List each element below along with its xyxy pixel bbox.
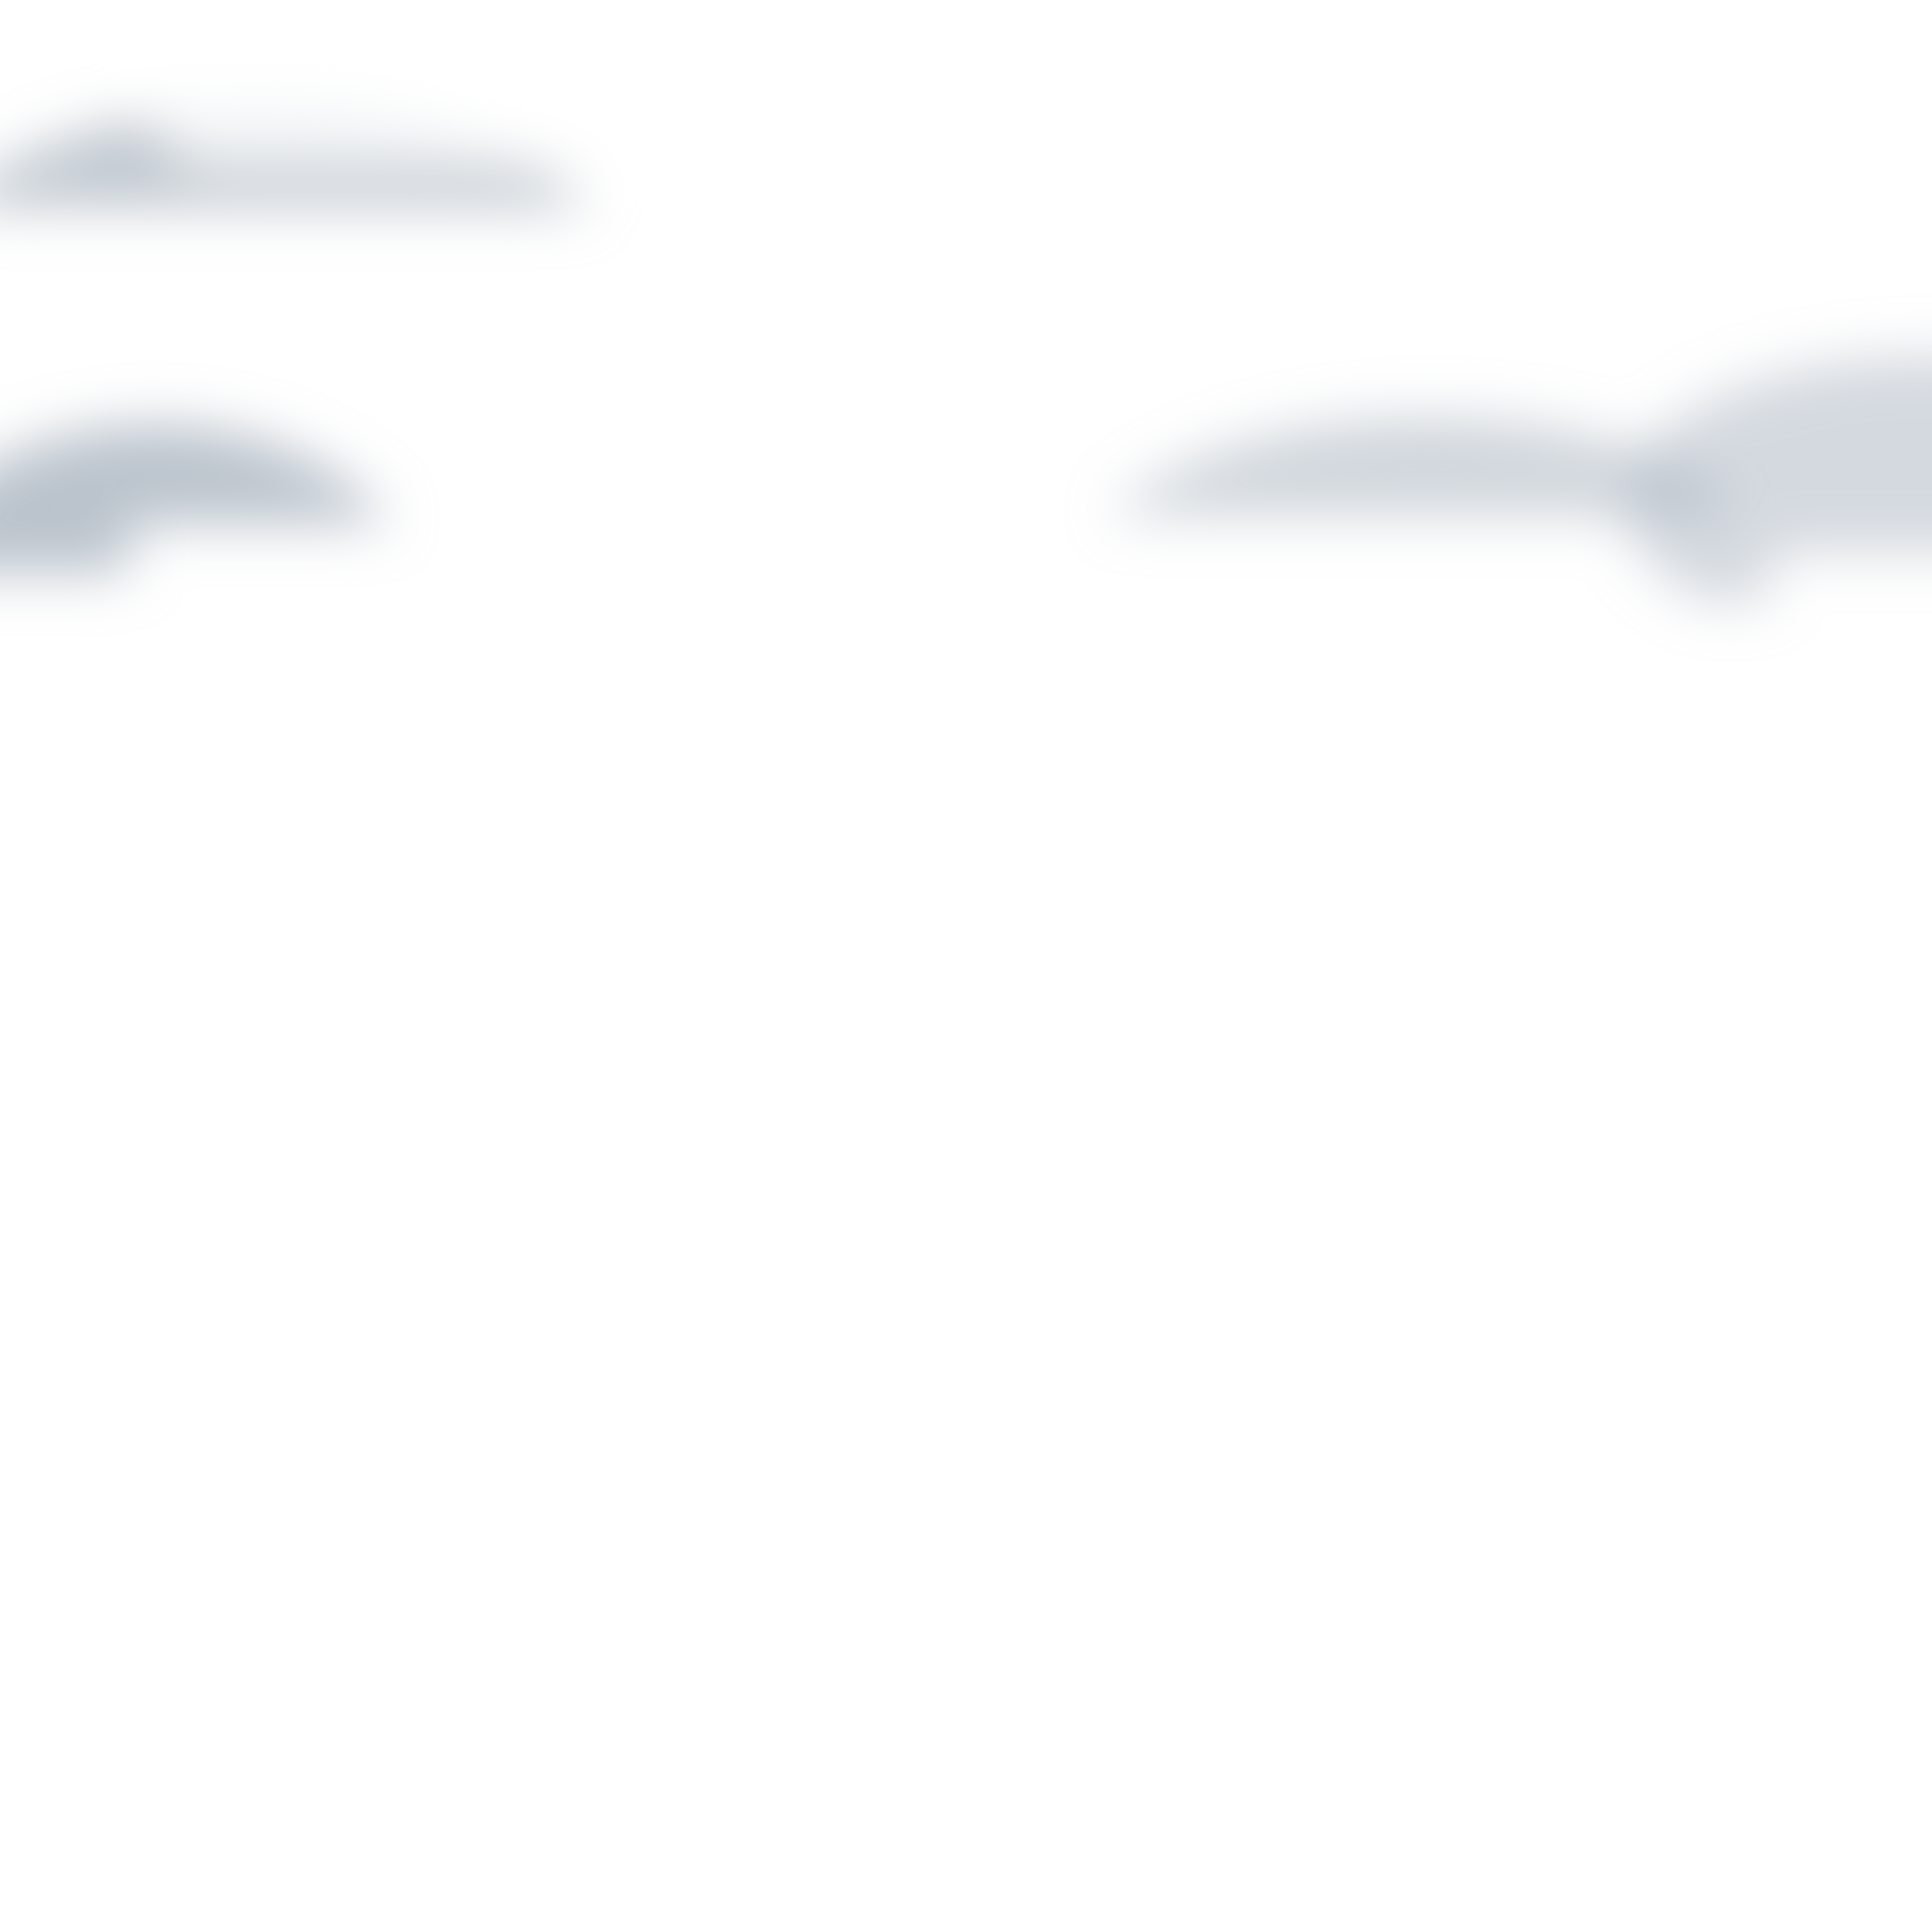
view-title: TAMPAK UTARA (A) [369,1523,756,1570]
scale-tick-24: 24 [689,1381,731,1422]
shrub-row [1151,1130,1712,1145]
view-title-marker: TAMPAK UTARA (A) SKALA 1:200 [247,1486,1078,1669]
scale-tick-32: 32 [875,1381,917,1422]
university-logo: UNIVERSITAS KRISTEN PETRA [1657,1668,1811,1823]
logo-cross-tent-emblem [1684,1701,1784,1786]
scale-tick-8: 8 [328,1381,348,1422]
scale-tick-16: 16 [503,1381,545,1422]
view-scale-label: SKALA 1:200 [369,1592,622,1639]
institution-block: PROGRAM STUDI ARSITEKTUR FAKULTAS TEKNIK… [1606,1810,1862,1917]
judul-gambar-value: TAMPAK UTARA (A) [1862,1780,1932,1865]
elevation-drawing: Symphony MUSIC HALL Symphony 0 8 16 24 3… [0,0,1932,1917]
titleblock-header: TUGAS AKHIR - SEMESTER GENAP 2016/2017 [1862,1653,1932,1681]
wall-sign-script: Symphony [1495,1123,1581,1146]
drawing-sheet: Symphony MUSIC HALL Symphony 0 8 16 24 3… [0,0,1932,1917]
title-block: TUGAS AKHIR - SEMESTER GENAP 2016/2017 J… [1603,1650,1932,1875]
scale-bar: 0 8 16 24 32 [142,1348,916,1422]
judul-tugas-value: GEDUNG KONSER MUSIK POPULER DI SURABAYA [1862,1702,1932,1773]
scale-tick-0: 0 [142,1381,162,1422]
